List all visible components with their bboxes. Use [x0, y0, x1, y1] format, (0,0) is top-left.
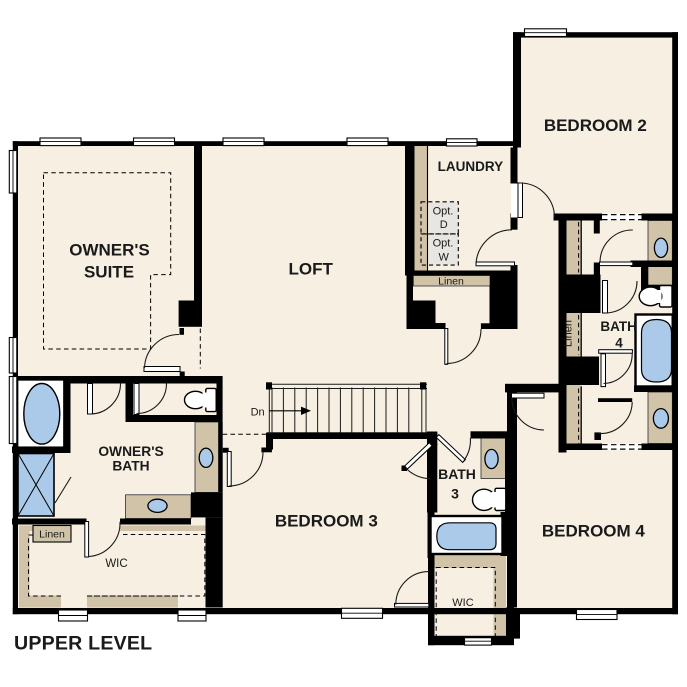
svg-text:LAUNDRY: LAUNDRY — [438, 159, 504, 174]
svg-text:BATH: BATH — [112, 458, 149, 473]
svg-text:W: W — [439, 251, 450, 263]
svg-text:Opt.: Opt. — [433, 205, 454, 217]
svg-text:Opt.: Opt. — [433, 237, 454, 249]
svg-text:Linen: Linen — [438, 276, 464, 288]
svg-text:Linen: Linen — [39, 529, 65, 541]
svg-text:4: 4 — [615, 336, 623, 351]
svg-text:D: D — [440, 219, 448, 231]
svg-text:Linen: Linen — [562, 320, 574, 347]
svg-text:3: 3 — [451, 486, 459, 502]
svg-text:LOFT: LOFT — [289, 259, 334, 278]
svg-text:OWNER'S: OWNER'S — [98, 444, 163, 459]
svg-text:OWNER'S: OWNER'S — [69, 241, 150, 260]
svg-text:Dn: Dn — [251, 406, 265, 418]
svg-text:BEDROOM 2: BEDROOM 2 — [544, 116, 647, 135]
svg-text:BATH: BATH — [600, 319, 637, 334]
svg-text:WIC: WIC — [105, 558, 127, 570]
svg-text:WIC: WIC — [452, 597, 473, 609]
svg-text:BEDROOM 4: BEDROOM 4 — [542, 522, 646, 541]
svg-text:SUITE: SUITE — [84, 262, 134, 281]
svg-text:UPPER LEVEL: UPPER LEVEL — [14, 632, 152, 654]
svg-text:BEDROOM 3: BEDROOM 3 — [275, 512, 378, 531]
svg-text:BATH: BATH — [438, 466, 476, 482]
